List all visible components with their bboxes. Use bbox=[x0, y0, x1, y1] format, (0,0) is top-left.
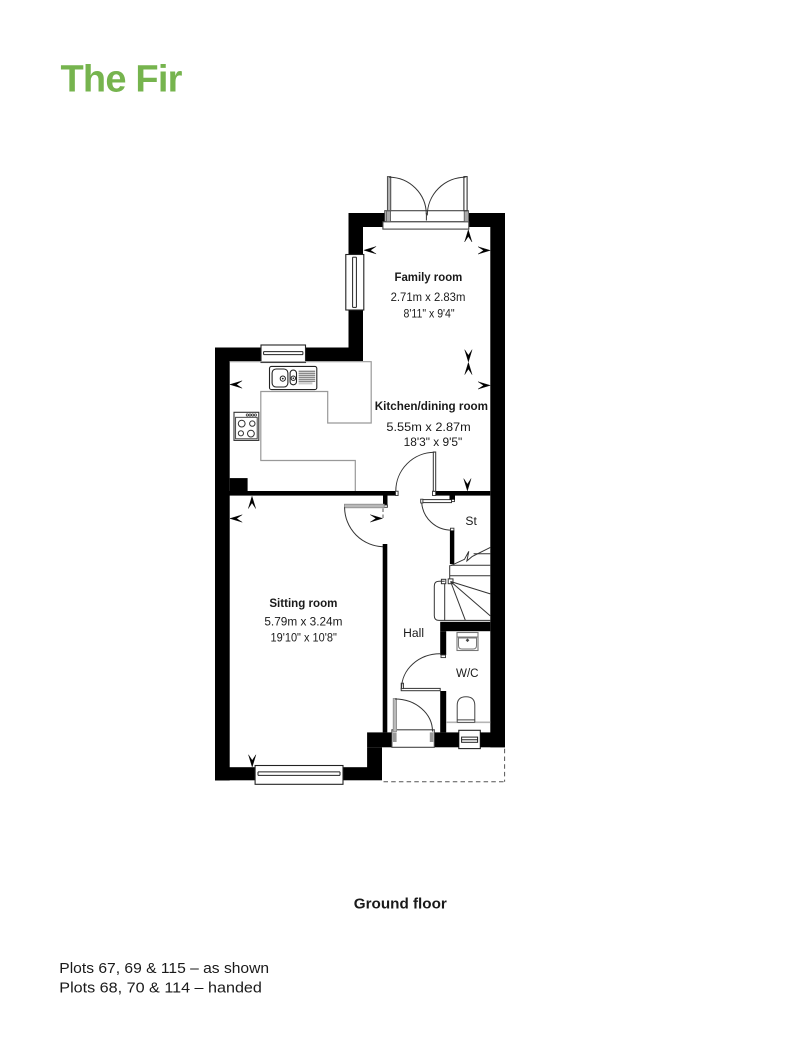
svg-text:Plots 68, 70 & 114 – handed: Plots 68, 70 & 114 – handed bbox=[59, 980, 262, 997]
svg-text:19'10" x 10'8": 19'10" x 10'8" bbox=[271, 630, 337, 644]
svg-text:Ground floor: Ground floor bbox=[354, 896, 447, 912]
svg-text:W/C: W/C bbox=[456, 666, 479, 680]
svg-text:2.71m x 2.83m: 2.71m x 2.83m bbox=[391, 290, 466, 304]
svg-text:Kitchen/dining room: Kitchen/dining room bbox=[375, 399, 488, 413]
svg-text:Sitting room: Sitting room bbox=[269, 596, 337, 610]
svg-text:The Fir: The Fir bbox=[61, 58, 183, 100]
svg-text:18'3" x 9'5": 18'3" x 9'5" bbox=[404, 435, 463, 449]
svg-text:Plots 67, 69 & 115 – as shown: Plots 67, 69 & 115 – as shown bbox=[59, 960, 269, 977]
svg-text:St: St bbox=[465, 514, 477, 528]
svg-text:8'11" x 9'4": 8'11" x 9'4" bbox=[404, 306, 455, 320]
svg-text:Hall: Hall bbox=[403, 626, 424, 640]
svg-text:5.55m x 2.87m: 5.55m x 2.87m bbox=[386, 420, 470, 434]
svg-text:Family room: Family room bbox=[395, 270, 463, 284]
svg-text:5.79m x 3.24m: 5.79m x 3.24m bbox=[264, 615, 342, 629]
